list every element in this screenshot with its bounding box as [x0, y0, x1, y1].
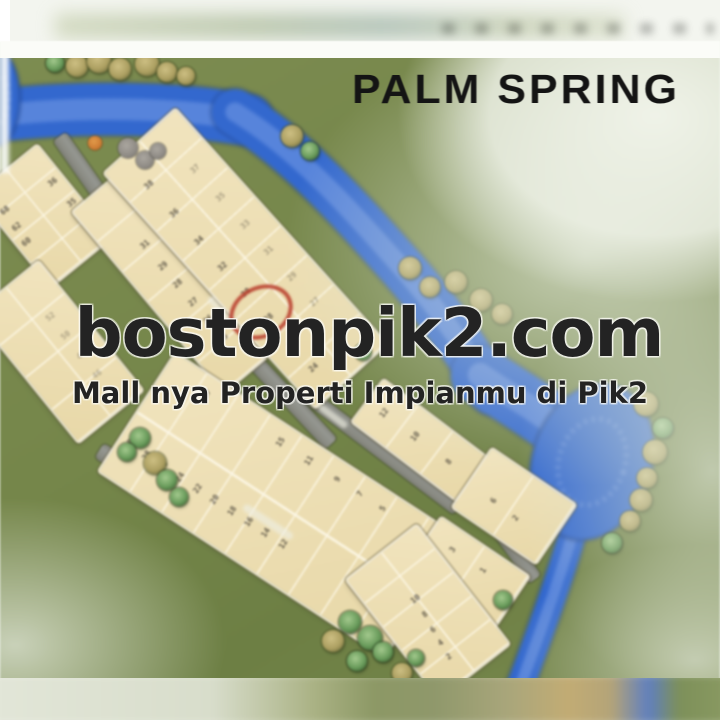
lot-number: 36 [46, 175, 59, 188]
lot-number: 10 [408, 430, 421, 443]
tree [408, 650, 424, 666]
watermark-site: bostonpik2.com [9, 300, 720, 367]
lot-number: 10 [409, 592, 422, 605]
tree [494, 591, 512, 609]
lot-number: 36 [167, 206, 180, 219]
tree [88, 136, 102, 150]
watermark-tagline: Mall nya Properti Impianmu di Pik2 [0, 379, 720, 408]
tree [392, 663, 412, 678]
lot-number: 2 [510, 513, 520, 522]
lot-number: 22 [191, 482, 204, 495]
lot-number: 34 [192, 234, 205, 247]
lot-number: 35 [65, 196, 78, 209]
tree [445, 271, 467, 293]
tree [118, 443, 136, 461]
tree [399, 257, 421, 279]
lot-number: 9 [332, 474, 342, 483]
lot-number: 29 [156, 259, 169, 272]
lot-number: 20 [208, 493, 221, 506]
photo-top-blur-strip [0, 0, 720, 42]
photo-bottom-blur-band [0, 678, 720, 720]
lot-number: 37 [188, 161, 201, 174]
lot-number: 1 [477, 566, 487, 575]
lot-number: 62 [10, 220, 23, 233]
lot-number: 29 [285, 269, 298, 282]
title-echo-smudge [442, 23, 714, 34]
lot-number: 33 [238, 217, 251, 230]
tree [630, 489, 652, 511]
tree [150, 143, 166, 159]
tree [301, 142, 319, 160]
lot-number: 35 [213, 189, 226, 202]
tree [373, 642, 393, 662]
white-band [0, 41, 720, 59]
tree [170, 488, 188, 506]
tree [602, 533, 622, 553]
lot-number: 4 [436, 637, 445, 647]
lot-number: 15 [274, 435, 287, 448]
left-edge-glare [0, 58, 9, 173]
lot-number: 31 [262, 243, 275, 256]
lot-number: 8 [444, 457, 454, 466]
tree [620, 511, 640, 531]
tree [177, 67, 195, 85]
tree [322, 630, 344, 652]
lot-number: 68 [0, 203, 11, 216]
lot-number: 6 [488, 496, 498, 505]
tree [339, 611, 361, 633]
estate-title: PALM SPRING [352, 66, 720, 113]
tree [281, 125, 303, 147]
lot-number: 3 [447, 546, 457, 555]
tree [643, 440, 667, 464]
lot-number: 7 [355, 489, 365, 498]
lot-number: 11 [303, 454, 316, 467]
lot-number: 38 [141, 178, 154, 191]
lot-number: 60 [20, 235, 33, 248]
tree [347, 651, 367, 671]
lot-number: 6 [428, 624, 437, 634]
lot-number: 32 [215, 260, 228, 273]
white-corner [0, 0, 10, 42]
blur-gradient [0, 678, 720, 720]
tree [157, 470, 177, 490]
lot-number: 2 [445, 651, 454, 661]
tree [109, 58, 131, 80]
tree [653, 418, 673, 438]
tree [118, 138, 138, 158]
lot-number: 31 [138, 237, 151, 250]
screenshot-root: { "meta": {"description": "Blurry photo … [0, 0, 720, 720]
lot-number: 18 [225, 504, 238, 517]
tree [157, 62, 177, 82]
lot-number: 5 [378, 504, 388, 513]
lot-number: 28 [171, 277, 184, 290]
tree [637, 468, 657, 488]
lot-number: 8 [420, 610, 429, 620]
